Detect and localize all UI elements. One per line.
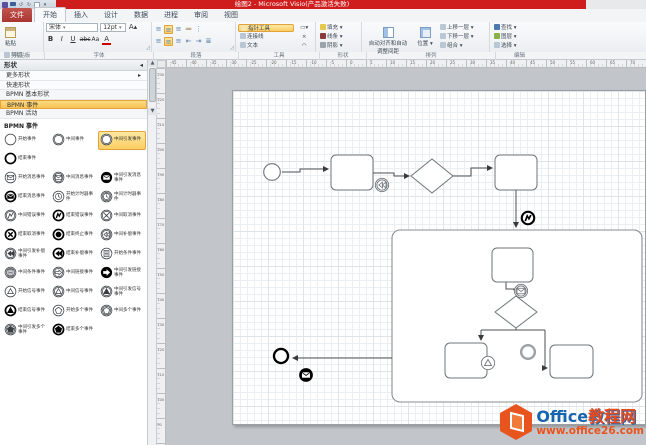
- select-icon: [494, 42, 500, 48]
- plain-event-icon: [100, 133, 113, 148]
- group-font: 宋体 ▾ 12pt ▾ A▴ B I U abc Aa A ◿: [44, 22, 152, 52]
- tab-审阅[interactable]: 审阅: [186, 8, 216, 22]
- message-event-icon: [4, 171, 17, 186]
- shape-item-开始计时器事件[interactable]: 开始计时器事件: [50, 188, 98, 207]
- layers-button[interactable]: 图层 ▾: [492, 33, 519, 41]
- shape-item-中间补偿事件[interactable]: 中间补偿事件: [98, 226, 146, 245]
- text-tool-icon: [240, 42, 246, 48]
- shape-item-label: 结束取消事件: [18, 232, 48, 238]
- link-event-icon: [52, 266, 65, 281]
- v-ruler-label: 230: [157, 72, 164, 77]
- italic-button[interactable]: I: [57, 35, 66, 43]
- shape-item-label: 开始消息事件: [18, 175, 48, 181]
- h-ruler-label: 50: [550, 60, 555, 65]
- timer-event-icon: [52, 190, 65, 205]
- shape-item-label: 中间引发链接事件: [114, 268, 144, 279]
- shape-item-结束补偿事件[interactable]: 结束补偿事件: [50, 245, 98, 264]
- shape-item-开始事件[interactable]: 开始事件: [2, 131, 50, 150]
- shape-item-中间引发信号事件[interactable]: 中间引发信号事件: [98, 283, 146, 302]
- tools-group-label: 工具: [239, 52, 320, 60]
- shape-item-结束错误事件[interactable]: 结束错误事件: [50, 207, 98, 226]
- terminate-event-icon: [52, 228, 65, 243]
- watermark-brand-en: Office: [536, 407, 588, 426]
- shape-item-中间信号事件[interactable]: 中间信号事件: [50, 283, 98, 302]
- connector-icon: [240, 33, 246, 39]
- v-ruler-label: 120: [157, 347, 164, 352]
- shape-item-label: 中间多个事件: [114, 308, 144, 314]
- multiple-event-icon: [52, 323, 65, 338]
- group-editing: 查找 ▾ 图层 ▾ 选择 ▾: [490, 22, 536, 52]
- font-dialog-launcher-icon[interactable]: ◿: [146, 45, 150, 51]
- shape-item-结束取消事件[interactable]: 结束取消事件: [2, 226, 50, 245]
- fill-icon: [320, 24, 326, 30]
- multiple-event-icon: [100, 304, 113, 319]
- shape-item-结束事件[interactable]: 结束事件: [2, 150, 50, 169]
- cancel-event-icon: [100, 209, 113, 224]
- shape-item-中间计时器事件[interactable]: 中间计时器事件: [98, 188, 146, 207]
- h-ruler-label: 30: [470, 60, 475, 65]
- scroll-down-icon[interactable]: ▼: [148, 108, 157, 115]
- shape-item-中间条件事件[interactable]: 中间条件事件: [2, 264, 50, 283]
- fill-button[interactable]: 填充 ▾: [318, 24, 345, 32]
- h-ruler-label: 65: [610, 60, 615, 65]
- shape-item-label: 中间错误事件: [18, 213, 48, 219]
- conditional-event-icon: [4, 266, 17, 281]
- h-ruler-label: 45: [530, 60, 535, 65]
- send-backward-icon: [440, 33, 446, 39]
- shape-item-label: 中间引发消息事件: [114, 173, 144, 184]
- shapes-panel-header: 形状 ◂: [0, 60, 147, 71]
- h-ruler-label: -5: [330, 60, 334, 65]
- pointer-tool-button[interactable]: 指针工具: [238, 24, 294, 32]
- shape-item-label: 开始多个事件: [66, 308, 96, 314]
- compensation-event-icon: [52, 247, 65, 262]
- increase-indent-icon[interactable]: ⇥: [194, 37, 203, 46]
- shape-item-label: 开始条件事件: [114, 251, 144, 257]
- paragraph-group-label: 段落: [154, 52, 239, 60]
- bring-forward-icon: [440, 24, 446, 30]
- shape-item-label: 结束事件: [18, 156, 48, 162]
- align-right-icon[interactable]: ≡: [174, 37, 183, 46]
- plain-event-icon: [4, 133, 17, 148]
- shape-item-中间引发链接事件[interactable]: 中间引发链接事件: [98, 264, 146, 283]
- shape-item-label: 中间引发多个事件: [18, 325, 48, 336]
- compensation-event-icon: [100, 228, 113, 243]
- h-ruler-label: -45: [170, 60, 177, 65]
- find-icon: [494, 24, 500, 30]
- v-ruler-label: 100: [157, 397, 164, 402]
- signal-event-icon: [4, 304, 17, 319]
- tab-进程[interactable]: 进程: [156, 8, 186, 22]
- timer-event-icon: [100, 190, 113, 205]
- message-event-icon: [100, 171, 113, 186]
- group-arrange: 自动对齐和自动调整间距 位置 ▾ 上移一层 ▾ 下移一层 ▾ 组合 ▾: [362, 22, 490, 52]
- drawing-page[interactable]: [232, 90, 646, 425]
- tab-插入[interactable]: 插入: [66, 8, 96, 22]
- select-button[interactable]: 选择 ▾: [492, 42, 519, 50]
- main-area: 形状 ◂ 更多形状▸ 快速形状 BPMN 基本形状BPMN 事件BPMN 活动 …: [0, 60, 646, 445]
- scroll-up-icon[interactable]: ▲: [148, 60, 157, 67]
- text-direction-icon[interactable]: ⋮: [194, 25, 203, 34]
- line-spacing-icon[interactable]: ≣: [204, 37, 213, 46]
- shape-item-label: 中间取消事件: [114, 213, 144, 219]
- align-center-icon[interactable]: ≡: [164, 37, 173, 46]
- stencil-BPMN 基本形状[interactable]: BPMN 基本形状: [0, 90, 147, 100]
- align-bottom-icon[interactable]: ≡: [174, 25, 183, 34]
- stencil-section-title: BPMN 事件: [0, 119, 147, 129]
- position-button[interactable]: 位置 ▾: [414, 23, 436, 51]
- v-ruler-label: 140: [157, 297, 164, 302]
- watermark-brand-cn: 教程网: [588, 407, 636, 426]
- watermark-url: www.office26.com: [536, 425, 644, 437]
- shape-item-label: 结束多个事件: [66, 327, 96, 333]
- quick-shapes-row[interactable]: 快速形状: [0, 81, 147, 91]
- h-ruler-label: -25: [250, 60, 257, 65]
- ribbon-body: 粘贴 剪切 复制 格式刷 宋体 ▾ 12pt ▾ A▴ B I U: [0, 22, 646, 52]
- shape-item-中间多个事件[interactable]: 中间多个事件: [98, 302, 146, 321]
- ruler-corner: [157, 60, 166, 68]
- v-ruler-label: 150: [157, 272, 164, 277]
- shape-item-中间事件[interactable]: 中间事件: [50, 131, 98, 150]
- shape-item-label: 中间引发信号事件: [114, 287, 144, 298]
- shape-item-中间引发多个事件[interactable]: 中间引发多个事件: [2, 321, 50, 340]
- paragraph-dialog-launcher-icon[interactable]: ◿: [230, 45, 234, 51]
- shape-item-中间引发事件[interactable]: 中间引发事件: [98, 131, 146, 150]
- group-shape: 填充 ▾ 线条 ▾ 阴影 ▾: [316, 22, 362, 52]
- shape-item-label: 中间事件: [66, 137, 96, 143]
- shape-item-中间错误事件[interactable]: 中间错误事件: [2, 207, 50, 226]
- shape-item-label: 中间条件事件: [18, 270, 48, 276]
- bring-forward-button[interactable]: 上移一层 ▾: [438, 24, 476, 32]
- shadow-icon: [320, 42, 326, 48]
- shape-item-中间引发补偿事件[interactable]: 中间引发补偿事件: [2, 245, 50, 264]
- paste-button[interactable]: 粘贴: [2, 23, 19, 51]
- font-color-button[interactable]: A: [102, 35, 111, 45]
- h-ruler-label: -20: [270, 60, 277, 65]
- text-tool-button[interactable]: 文本: [238, 42, 294, 50]
- tab-文件[interactable]: 文件: [2, 8, 32, 22]
- v-ruler-label: 200: [157, 147, 164, 152]
- shape-item-中间引发消息事件[interactable]: 中间引发消息事件: [98, 169, 146, 188]
- font-size-combo[interactable]: 12pt ▾: [100, 23, 126, 32]
- watermark: Office教程网 www.office26.com: [499, 403, 644, 441]
- align-top-icon[interactable]: ≡: [154, 25, 163, 34]
- shapes-panel: 形状 ◂ 更多形状▸ 快速形状 BPMN 基本形状BPMN 事件BPMN 活动 …: [0, 60, 148, 445]
- shape-item-开始消息事件[interactable]: 开始消息事件: [2, 169, 50, 188]
- more-shapes-arrow-icon: ▸: [138, 71, 141, 80]
- stencil-BPMN 活动[interactable]: BPMN 活动: [0, 109, 147, 119]
- vertical-ruler: 2302202102001901801701601501401301201101…: [157, 68, 166, 445]
- paste-icon: [5, 27, 16, 38]
- h-ruler-label: -30: [230, 60, 237, 65]
- find-button[interactable]: 查找 ▾: [492, 24, 519, 32]
- h-ruler-label: 60: [590, 60, 595, 65]
- auto-align-icon: [383, 27, 394, 38]
- shape-item-label: 开始信号事件: [18, 289, 48, 295]
- shape-item-开始信号事件[interactable]: 开始信号事件: [2, 283, 50, 302]
- ribbon-tabs: 文件开始插入设计数据进程审阅视图: [0, 9, 246, 22]
- h-ruler-label: -40: [190, 60, 197, 65]
- v-ruler-label: 110: [157, 372, 164, 377]
- shape-item-结束终止事件[interactable]: 结束终止事件: [50, 226, 98, 245]
- align-left-icon[interactable]: ≡: [154, 37, 163, 46]
- multiple-event-icon: [52, 304, 65, 319]
- shape-group-label: 形状: [320, 52, 367, 60]
- shadow-button[interactable]: 阴影 ▾: [318, 42, 345, 50]
- shape-item-结束信号事件[interactable]: 结束信号事件: [2, 302, 50, 321]
- line-button[interactable]: 线条 ▾: [318, 33, 345, 41]
- visio-window: ↺ ↻ ▾ 绘图2 - Microsoft Visio(产品激活失败) 文件开始…: [0, 0, 646, 445]
- h-ruler-label: 0: [350, 60, 353, 65]
- shape-item-中间消息事件[interactable]: 中间消息事件: [50, 169, 98, 188]
- compensation-event-icon: [4, 247, 17, 262]
- drawing-canvas[interactable]: Office教程网 www.office26.com: [166, 68, 646, 445]
- panel-collapse-icon[interactable]: ◂: [140, 60, 143, 70]
- grow-font-icon[interactable]: A▴: [128, 23, 137, 31]
- horizontal-ruler: -45-40-35-30-25-20-15-10-505101520253035…: [166, 60, 646, 68]
- group-tools: 指针工具 连接线 文本 ▭▾ × ◠: [236, 22, 316, 52]
- connector-tool-button[interactable]: 连接线: [238, 33, 294, 41]
- shape-item-label: 中间链接事件: [66, 270, 96, 276]
- plain-event-icon: [4, 152, 17, 167]
- v-ruler-label: 180: [157, 197, 164, 202]
- grid-spacer: [98, 150, 146, 169]
- shape-item-label: 中间补偿事件: [114, 232, 144, 238]
- message-event-icon: [4, 190, 17, 205]
- shape-item-label: 结束终止事件: [66, 232, 96, 238]
- group-labels: 剪贴板 字体 段落 工具 形状 排列 编辑: [0, 52, 646, 60]
- h-ruler-label: 10: [390, 60, 395, 65]
- shape-item-中间链接事件[interactable]: 中间链接事件: [50, 264, 98, 283]
- signal-event-icon: [52, 285, 65, 300]
- font-family-combo[interactable]: 宋体 ▾: [46, 23, 98, 32]
- shape-item-label: 中间计时器事件: [114, 192, 144, 203]
- group-clipboard: 粘贴 剪切 复制 格式刷: [0, 22, 44, 52]
- grid-spacer: [50, 150, 98, 169]
- shape-item-label: 中间消息事件: [66, 175, 96, 181]
- error-event-icon: [52, 209, 65, 224]
- align-middle-icon[interactable]: ≡: [164, 25, 173, 34]
- h-ruler-label: 55: [570, 60, 575, 65]
- h-ruler-label: 40: [510, 60, 515, 65]
- title-corner: [586, 0, 646, 9]
- v-ruler-label: 170: [157, 222, 164, 227]
- shape-item-结束多个事件[interactable]: 结束多个事件: [50, 321, 98, 340]
- h-ruler-label: 35: [490, 60, 495, 65]
- shape-item-label: 结束补偿事件: [66, 251, 96, 257]
- stencil-list: BPMN 基本形状BPMN 事件BPMN 活动: [0, 90, 147, 119]
- message-event-icon: [52, 171, 65, 186]
- h-ruler-label: 70: [630, 60, 635, 65]
- shape-item-label: 中间引发补偿事件: [18, 249, 48, 260]
- underline-button[interactable]: U: [68, 35, 77, 43]
- shape-item-开始多个事件[interactable]: 开始多个事件: [50, 302, 98, 321]
- freeform-tool-icon[interactable]: ◠: [296, 42, 312, 50]
- group-button[interactable]: 组合 ▾: [438, 42, 476, 50]
- arrange-group-label: 排列: [367, 52, 496, 60]
- v-ruler-label: 90: [157, 422, 162, 427]
- position-icon: [420, 27, 431, 38]
- signal-event-icon: [4, 285, 17, 300]
- shape-item-label: 中间信号事件: [66, 289, 96, 295]
- multiple-event-icon: [4, 323, 17, 338]
- shape-item-label: 开始事件: [18, 137, 48, 143]
- line-icon: [320, 33, 326, 39]
- h-ruler-label: -10: [310, 60, 317, 65]
- shape-item-label: 中间引发事件: [114, 137, 144, 143]
- pointer-tool-icon: [241, 25, 247, 31]
- shape-item-开始条件事件[interactable]: 开始条件事件: [98, 245, 146, 264]
- group-icon: [440, 42, 446, 48]
- v-ruler-label: 210: [157, 122, 164, 127]
- v-ruler-label: 190: [157, 172, 164, 177]
- auto-align-button[interactable]: 自动对齐和自动调整间距: [364, 27, 412, 55]
- shape-item-label: 结束信号事件: [18, 308, 48, 314]
- shape-item-label: 结束错误事件: [66, 213, 96, 219]
- bullets-icon[interactable]: ≔: [184, 25, 193, 34]
- shape-item-label: 开始计时器事件: [66, 192, 96, 203]
- signal-event-icon: [100, 285, 113, 300]
- tab-开始[interactable]: 开始: [34, 7, 66, 22]
- rectangle-tool-icon[interactable]: ▭▾: [296, 24, 312, 32]
- v-ruler-label: 130: [157, 322, 164, 327]
- clipboard-group-label: 剪贴板: [0, 52, 45, 60]
- cancel-event-icon: [4, 228, 17, 243]
- error-event-icon: [4, 209, 17, 224]
- tab-视图[interactable]: 视图: [216, 8, 246, 22]
- strikethrough-button[interactable]: abc: [80, 36, 89, 43]
- font-group-label: 字体: [45, 52, 154, 60]
- tab-设计[interactable]: 设计: [96, 8, 126, 22]
- shape-item-结束消息事件[interactable]: 结束消息事件: [2, 188, 50, 207]
- v-ruler-label: 160: [157, 247, 164, 252]
- panel-scrollbar[interactable]: ▲ ▼: [148, 60, 157, 445]
- h-ruler-label: 15: [410, 60, 415, 65]
- scrollbar-thumb[interactable]: [149, 68, 156, 102]
- shapes-grid: 开始事件中间事件中间引发事件结束事件开始消息事件中间消息事件中间引发消息事件结束…: [0, 129, 147, 340]
- conditional-event-icon: [100, 247, 113, 262]
- decrease-indent-icon[interactable]: ⇤: [184, 37, 193, 46]
- group-paragraph: ≡ ≡ ≡ ≔ ⋮ ≡ ≡ ≡ ⇤ ⇥ ≣ ◿: [152, 22, 236, 52]
- send-backward-button[interactable]: 下移一层 ▾: [438, 33, 476, 41]
- change-case-button[interactable]: Aa: [91, 36, 100, 43]
- v-ruler-label: 220: [157, 97, 164, 102]
- bold-button[interactable]: B: [46, 35, 55, 43]
- ribbon: 文件开始插入设计数据进程审阅视图 粘贴 剪切 复制 格式刷 宋体 ▾ 12pt …: [0, 9, 646, 60]
- more-shapes-row[interactable]: 更多形状▸: [0, 71, 147, 81]
- shape-item-label: 结束消息事件: [18, 194, 48, 200]
- shape-item-中间取消事件[interactable]: 中间取消事件: [98, 207, 146, 226]
- h-ruler-label: -35: [210, 60, 217, 65]
- editing-group-label: 编辑: [496, 52, 543, 60]
- link-event-icon: [100, 266, 113, 281]
- plain-event-icon: [52, 133, 65, 148]
- h-ruler-label: 25: [450, 60, 455, 65]
- tab-数据[interactable]: 数据: [126, 8, 156, 22]
- layers-icon: [494, 33, 500, 39]
- stencil-BPMN 事件[interactable]: BPMN 事件: [0, 100, 147, 110]
- h-ruler-label: -15: [290, 60, 297, 65]
- watermark-logo-icon: [499, 403, 533, 441]
- h-ruler-label: 20: [430, 60, 435, 65]
- connection-point-icon[interactable]: ×: [296, 33, 312, 41]
- h-ruler-label: 5: [370, 60, 373, 65]
